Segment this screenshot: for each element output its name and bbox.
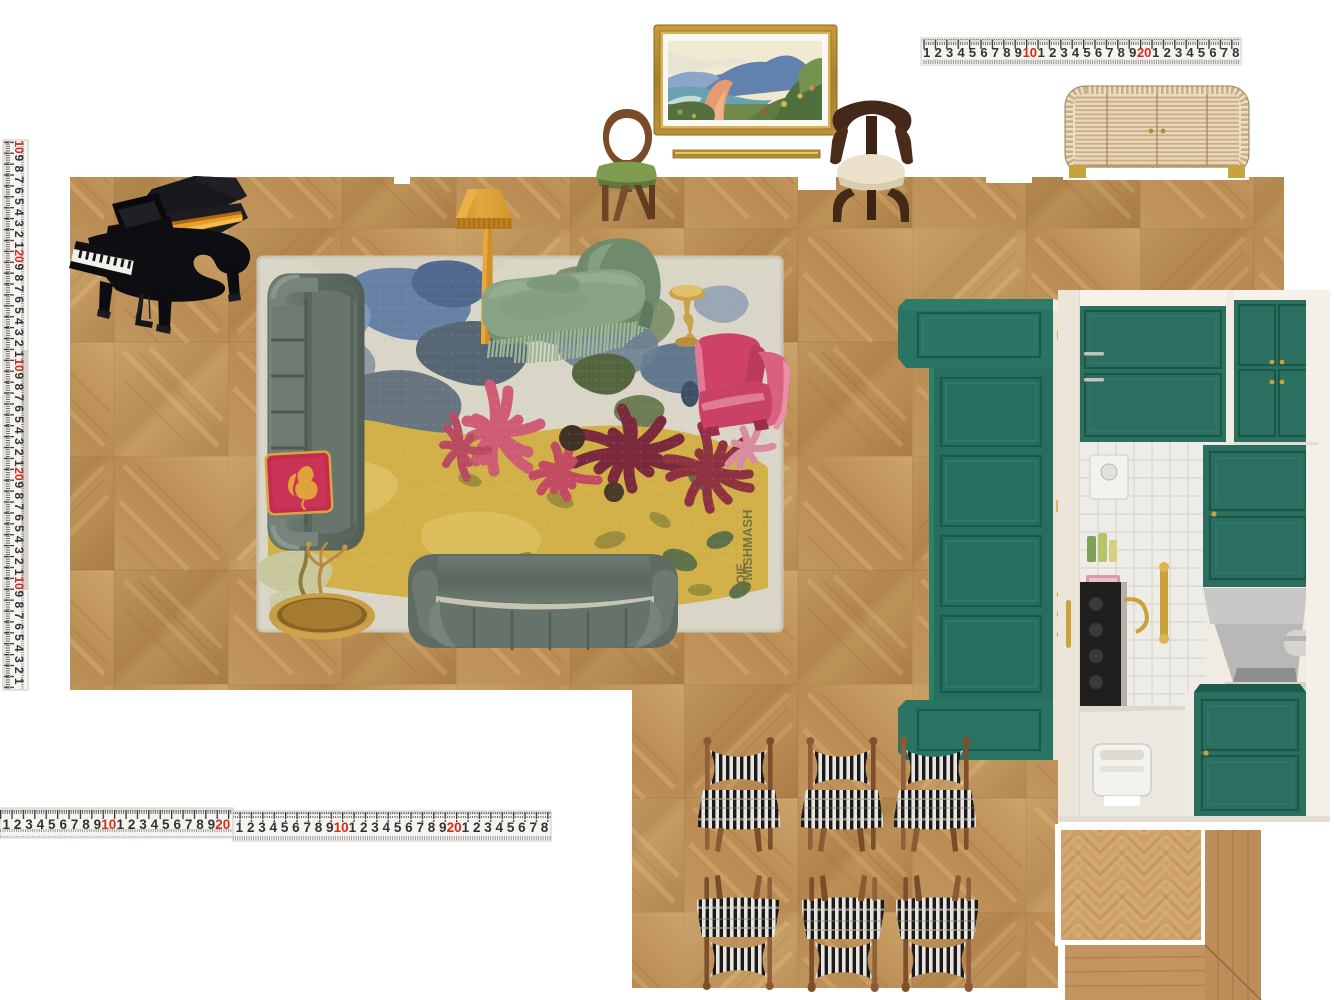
svg-text:3: 3	[12, 547, 26, 554]
svg-text:5: 5	[48, 817, 56, 832]
svg-text:1: 1	[12, 351, 26, 358]
svg-text:4: 4	[12, 536, 26, 543]
svg-text:10: 10	[334, 820, 349, 835]
svg-text:1: 1	[12, 460, 26, 467]
svg-text:6: 6	[12, 187, 26, 194]
svg-text:8: 8	[1118, 45, 1125, 60]
svg-text:8: 8	[82, 817, 90, 832]
svg-text:3: 3	[258, 820, 266, 835]
svg-text:8: 8	[196, 817, 204, 832]
svg-text:2: 2	[12, 340, 26, 347]
svg-text:4: 4	[151, 817, 159, 832]
svg-text:6: 6	[1209, 45, 1216, 60]
svg-text:1: 1	[12, 242, 26, 249]
svg-text:20: 20	[447, 820, 462, 835]
svg-text:3: 3	[12, 329, 26, 336]
svg-text:2: 2	[12, 449, 26, 456]
svg-text:7: 7	[1106, 45, 1113, 60]
svg-text:10: 10	[12, 140, 26, 154]
svg-text:3: 3	[12, 438, 26, 445]
svg-text:8: 8	[428, 820, 436, 835]
svg-text:7: 7	[12, 612, 26, 619]
svg-text:4: 4	[12, 427, 26, 434]
svg-text:6: 6	[1095, 45, 1102, 60]
svg-text:4: 4	[12, 645, 26, 652]
svg-text:1: 1	[349, 820, 357, 835]
svg-text:5: 5	[12, 634, 26, 641]
svg-text:3: 3	[139, 817, 147, 832]
svg-text:9: 9	[94, 817, 102, 832]
svg-text:7: 7	[529, 820, 537, 835]
svg-text:8: 8	[315, 820, 323, 835]
svg-text:4: 4	[12, 209, 26, 216]
svg-text:8: 8	[1232, 45, 1239, 60]
svg-text:10: 10	[12, 576, 26, 590]
svg-text:20: 20	[215, 817, 230, 832]
svg-text:8: 8	[12, 274, 26, 281]
svg-text:7: 7	[1221, 45, 1228, 60]
svg-text:10: 10	[101, 817, 116, 832]
svg-text:3: 3	[1175, 45, 1182, 60]
svg-text:7: 7	[71, 817, 79, 832]
svg-text:4: 4	[270, 820, 278, 835]
svg-text:7: 7	[416, 820, 424, 835]
svg-text:6: 6	[405, 820, 413, 835]
svg-text:6: 6	[59, 817, 67, 832]
svg-text:9: 9	[326, 820, 334, 835]
svg-text:7: 7	[992, 45, 999, 60]
svg-text:1: 1	[116, 817, 124, 832]
svg-text:8: 8	[12, 601, 26, 608]
svg-text:9: 9	[12, 591, 26, 598]
svg-text:20: 20	[12, 249, 26, 263]
svg-text:6: 6	[12, 296, 26, 303]
svg-text:9: 9	[12, 264, 26, 271]
svg-text:20: 20	[12, 467, 26, 481]
svg-text:4: 4	[1186, 45, 1194, 60]
svg-text:9: 9	[12, 482, 26, 489]
svg-text:8: 8	[12, 492, 26, 499]
svg-text:3: 3	[25, 817, 33, 832]
svg-text:1: 1	[2, 817, 10, 832]
svg-text:5: 5	[1083, 45, 1090, 60]
svg-text:2: 2	[247, 820, 255, 835]
svg-text:8: 8	[541, 820, 549, 835]
svg-text:2: 2	[360, 820, 368, 835]
svg-text:7: 7	[12, 285, 26, 292]
svg-text:5: 5	[969, 45, 976, 60]
svg-text:9: 9	[208, 817, 216, 832]
svg-text:3: 3	[946, 45, 953, 60]
svg-text:6: 6	[12, 514, 26, 521]
svg-text:5: 5	[12, 416, 26, 423]
svg-text:2: 2	[12, 558, 26, 565]
svg-text:6: 6	[173, 817, 181, 832]
svg-text:9: 9	[12, 155, 26, 162]
svg-text:2: 2	[12, 667, 26, 674]
svg-text:6: 6	[12, 405, 26, 412]
svg-text:7: 7	[185, 817, 193, 832]
svg-text:1: 1	[1152, 45, 1159, 60]
svg-text:3: 3	[12, 656, 26, 663]
svg-text:9: 9	[12, 373, 26, 380]
svg-text:6: 6	[980, 45, 987, 60]
svg-text:3: 3	[371, 820, 379, 835]
svg-text:5: 5	[12, 307, 26, 314]
svg-text:5: 5	[507, 820, 515, 835]
svg-text:9: 9	[439, 820, 447, 835]
svg-text:2: 2	[128, 817, 136, 832]
svg-text:3: 3	[1060, 45, 1067, 60]
svg-text:10: 10	[1023, 45, 1037, 60]
svg-text:1: 1	[236, 820, 244, 835]
svg-text:6: 6	[518, 820, 526, 835]
svg-text:1: 1	[923, 45, 930, 60]
svg-text:6: 6	[12, 623, 26, 630]
svg-text:7: 7	[12, 176, 26, 183]
svg-text:8: 8	[12, 383, 26, 390]
svg-text:2: 2	[12, 231, 26, 238]
svg-text:9: 9	[1015, 45, 1022, 60]
svg-text:20: 20	[1137, 45, 1151, 60]
svg-text:5: 5	[12, 198, 26, 205]
svg-text:3: 3	[484, 820, 492, 835]
svg-text:1: 1	[12, 678, 26, 685]
svg-text:4: 4	[1072, 45, 1080, 60]
svg-text:4: 4	[496, 820, 504, 835]
svg-text:5: 5	[281, 820, 289, 835]
svg-text:5: 5	[12, 525, 26, 532]
svg-text:1: 1	[12, 569, 26, 576]
svg-text:4: 4	[383, 820, 391, 835]
svg-text:8: 8	[1003, 45, 1010, 60]
svg-text:5: 5	[394, 820, 402, 835]
svg-text:2: 2	[14, 817, 22, 832]
svg-text:4: 4	[957, 45, 965, 60]
svg-text:7: 7	[303, 820, 311, 835]
svg-text:10: 10	[12, 358, 26, 372]
svg-text:5: 5	[162, 817, 170, 832]
svg-text:2: 2	[1164, 45, 1171, 60]
svg-text:2: 2	[1049, 45, 1056, 60]
svg-text:1: 1	[1038, 45, 1045, 60]
svg-text:2: 2	[473, 820, 481, 835]
svg-text:7: 7	[12, 503, 26, 510]
svg-text:4: 4	[37, 817, 45, 832]
svg-text:9: 9	[1129, 45, 1136, 60]
svg-text:8: 8	[12, 165, 26, 172]
svg-text:7: 7	[12, 394, 26, 401]
svg-text:6: 6	[292, 820, 300, 835]
svg-text:3: 3	[12, 220, 26, 227]
svg-text:1: 1	[462, 820, 470, 835]
svg-text:5: 5	[1198, 45, 1205, 60]
svg-text:2: 2	[935, 45, 942, 60]
svg-text:4: 4	[12, 318, 26, 325]
